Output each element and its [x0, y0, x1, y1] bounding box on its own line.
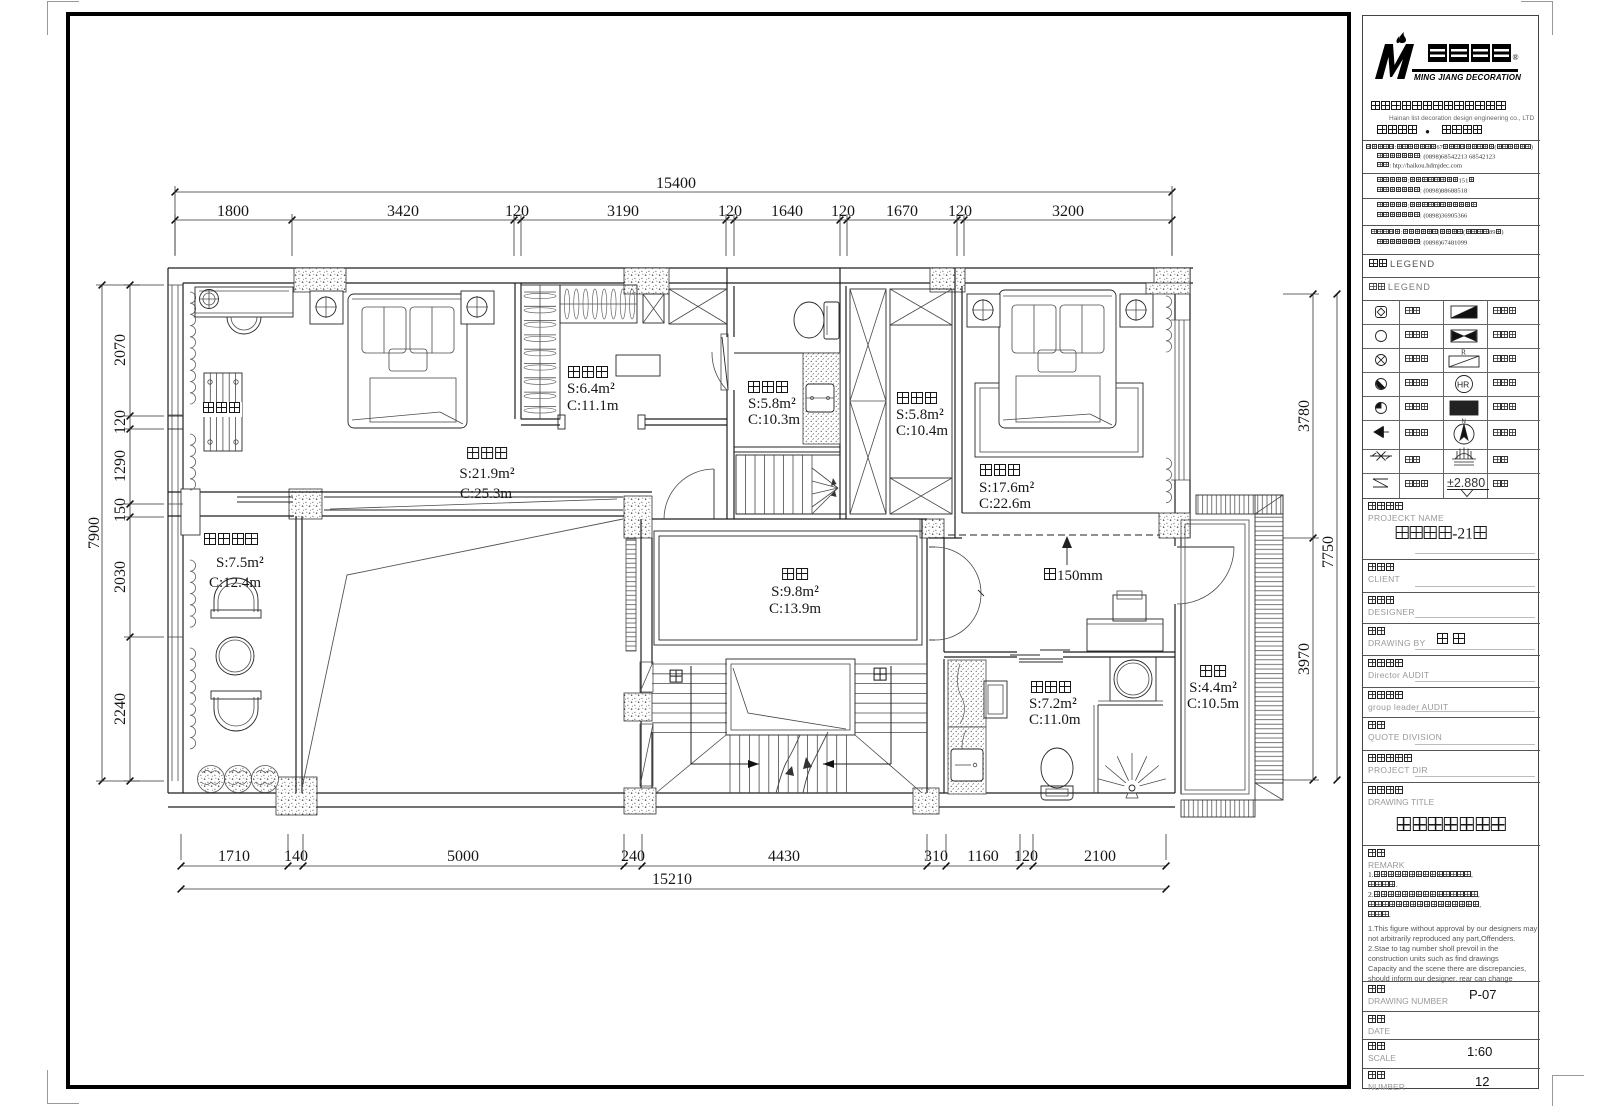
svg-text:HR: HR [1457, 380, 1469, 390]
svg-text:N: N [1462, 419, 1466, 425]
svg-text:±2.880: ±2.880 [1447, 476, 1485, 490]
svg-text:R: R [1461, 348, 1466, 357]
